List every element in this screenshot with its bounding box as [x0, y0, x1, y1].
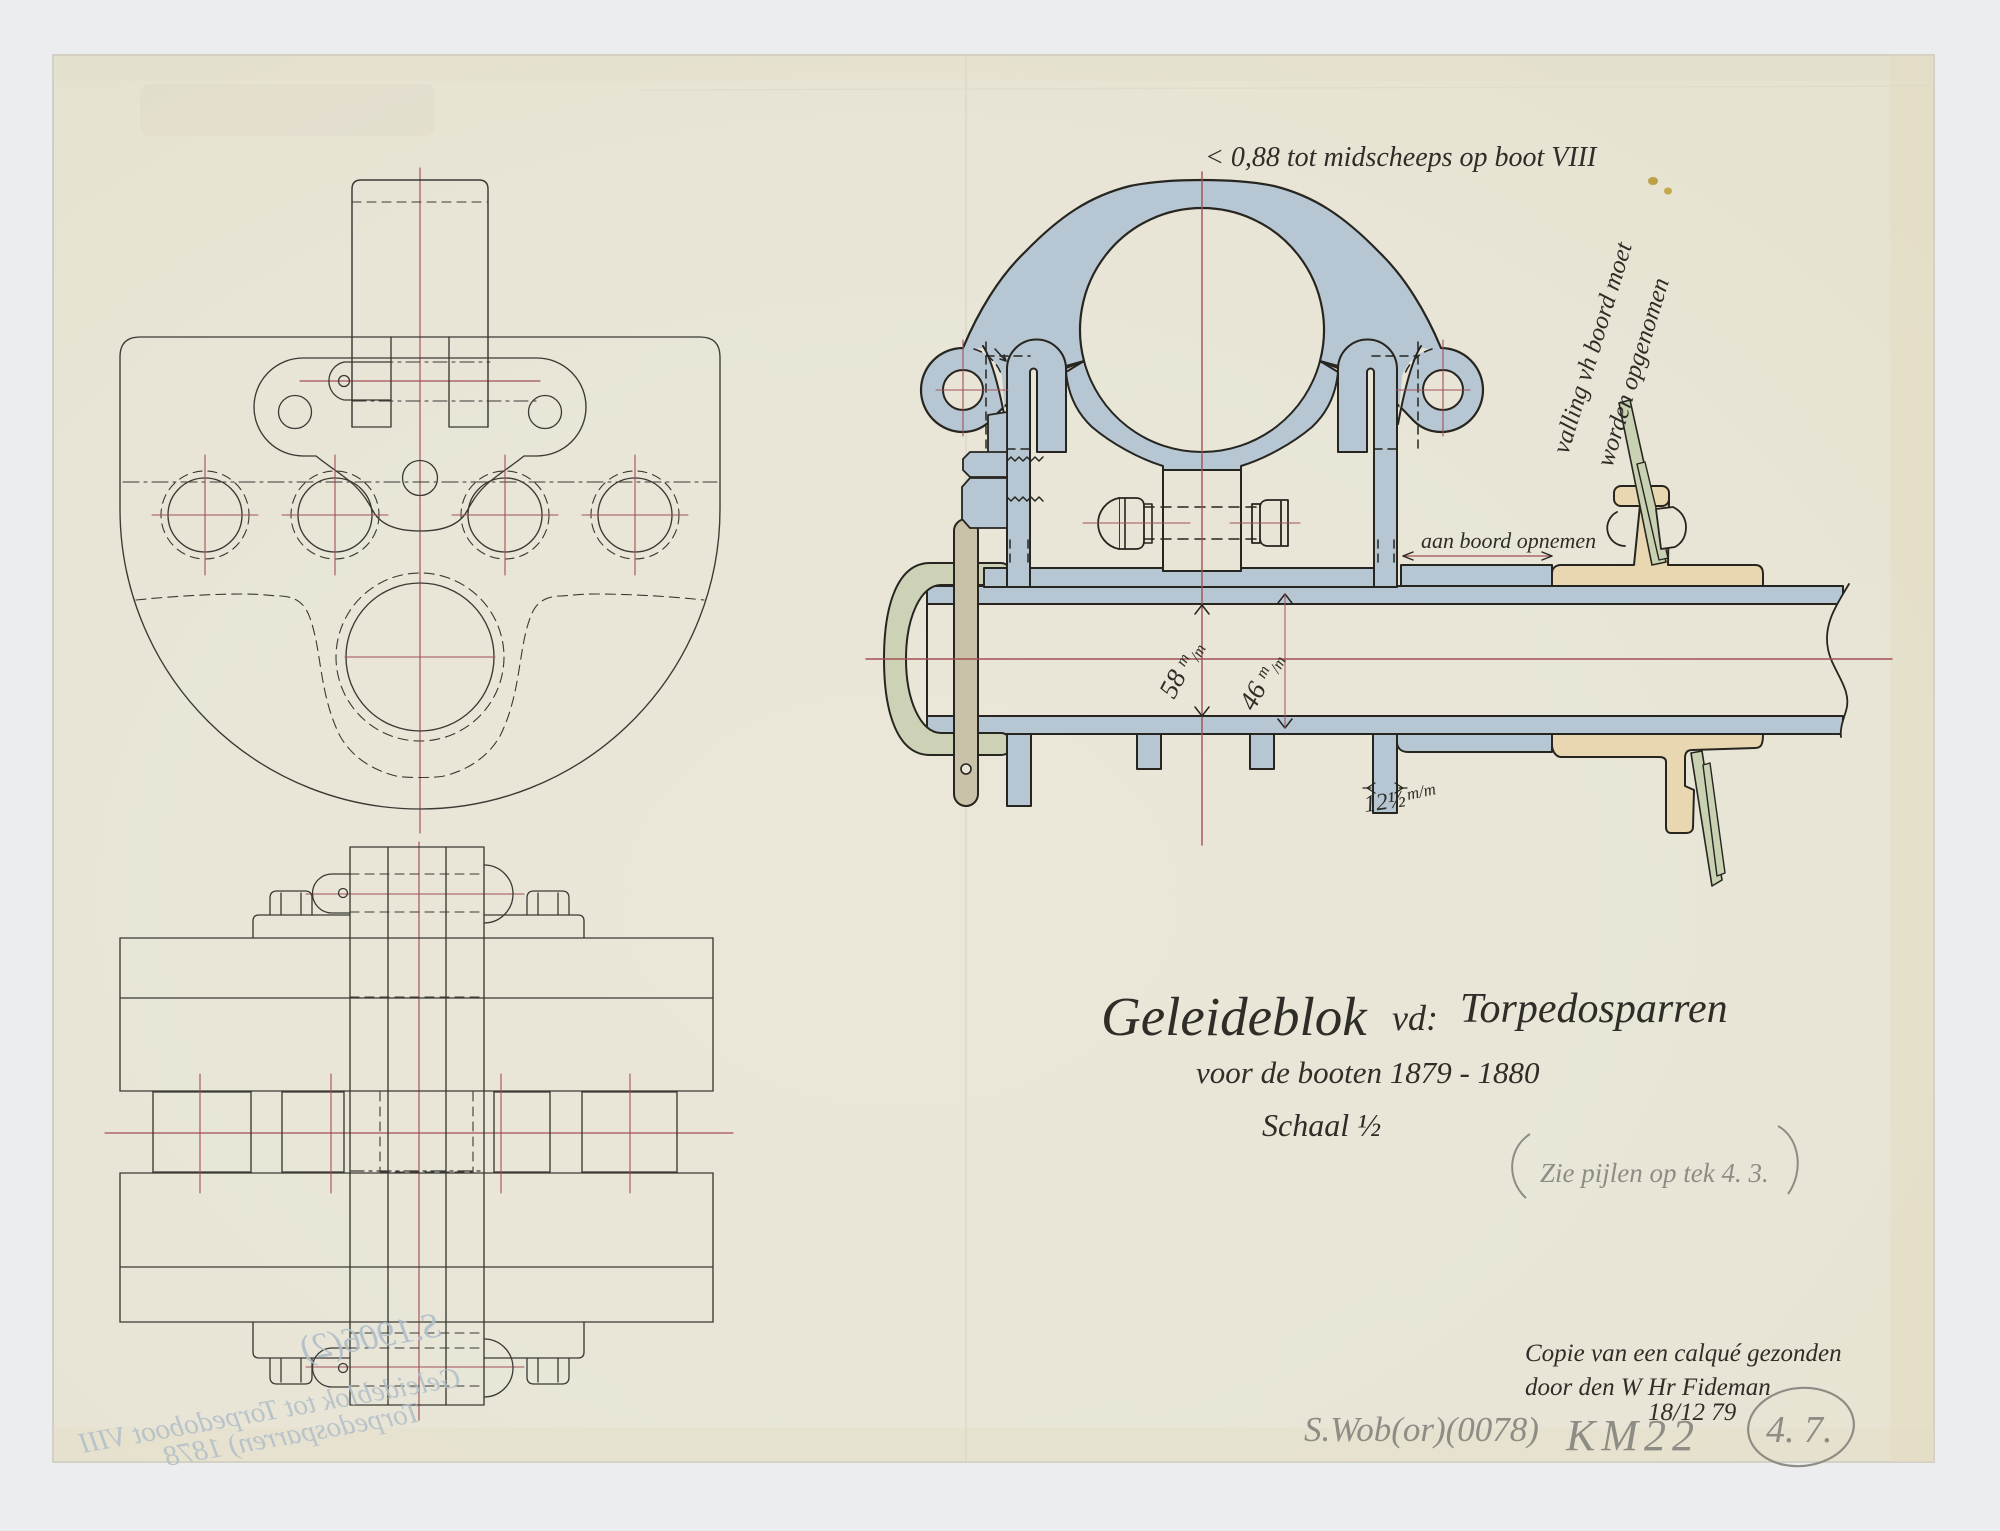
svg-text:Zie pijlen op tek 4. 3.: Zie pijlen op tek 4. 3.: [1540, 1158, 1769, 1188]
svg-text:Torpedosparren: Torpedosparren: [1460, 986, 1728, 1032]
svg-text:Schaal ½: Schaal ½: [1262, 1107, 1381, 1143]
svg-text:Copie van een calqué gezonden: Copie van een calqué gezonden: [1525, 1340, 1842, 1367]
svg-text:S.Wob(or)(0078): S.Wob(or)(0078): [1304, 1410, 1539, 1449]
svg-text:aan boord opnemen: aan boord opnemen: [1421, 528, 1596, 553]
svg-text:door den W Hr Fideman: door den W Hr Fideman: [1525, 1374, 1771, 1401]
svg-text:< 0,88 tot midscheeps op boot: < 0,88 tot midscheeps op boot VIII: [1205, 142, 1598, 173]
svg-text:voor de booten 1879 - 1880: voor de booten 1879 - 1880: [1196, 1055, 1540, 1090]
svg-text:vd:: vd:: [1392, 998, 1438, 1038]
svg-text:Geleideblok: Geleideblok: [1101, 986, 1368, 1047]
svg-text:KM22: KM22: [1565, 1411, 1700, 1460]
svg-text:4. 7.: 4. 7.: [1766, 1409, 1833, 1451]
